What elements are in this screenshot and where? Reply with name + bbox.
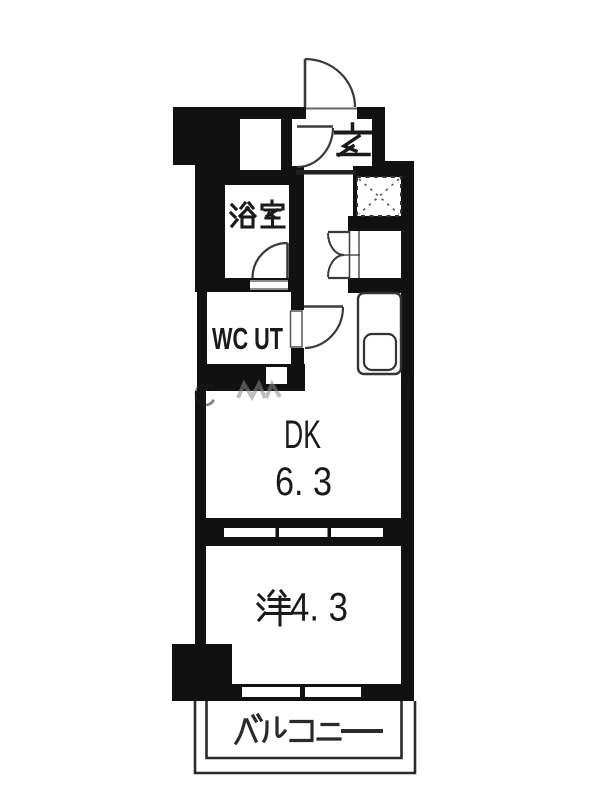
svg-text:6. 3: 6. 3: [275, 460, 332, 504]
svg-text:DK: DK: [284, 413, 321, 457]
svg-text:4. 3: 4. 3: [290, 586, 348, 630]
svg-text:WC UT: WC UT: [212, 321, 283, 356]
svg-text:I: I: [404, 372, 413, 408]
svg-text:C: C: [193, 377, 216, 413]
